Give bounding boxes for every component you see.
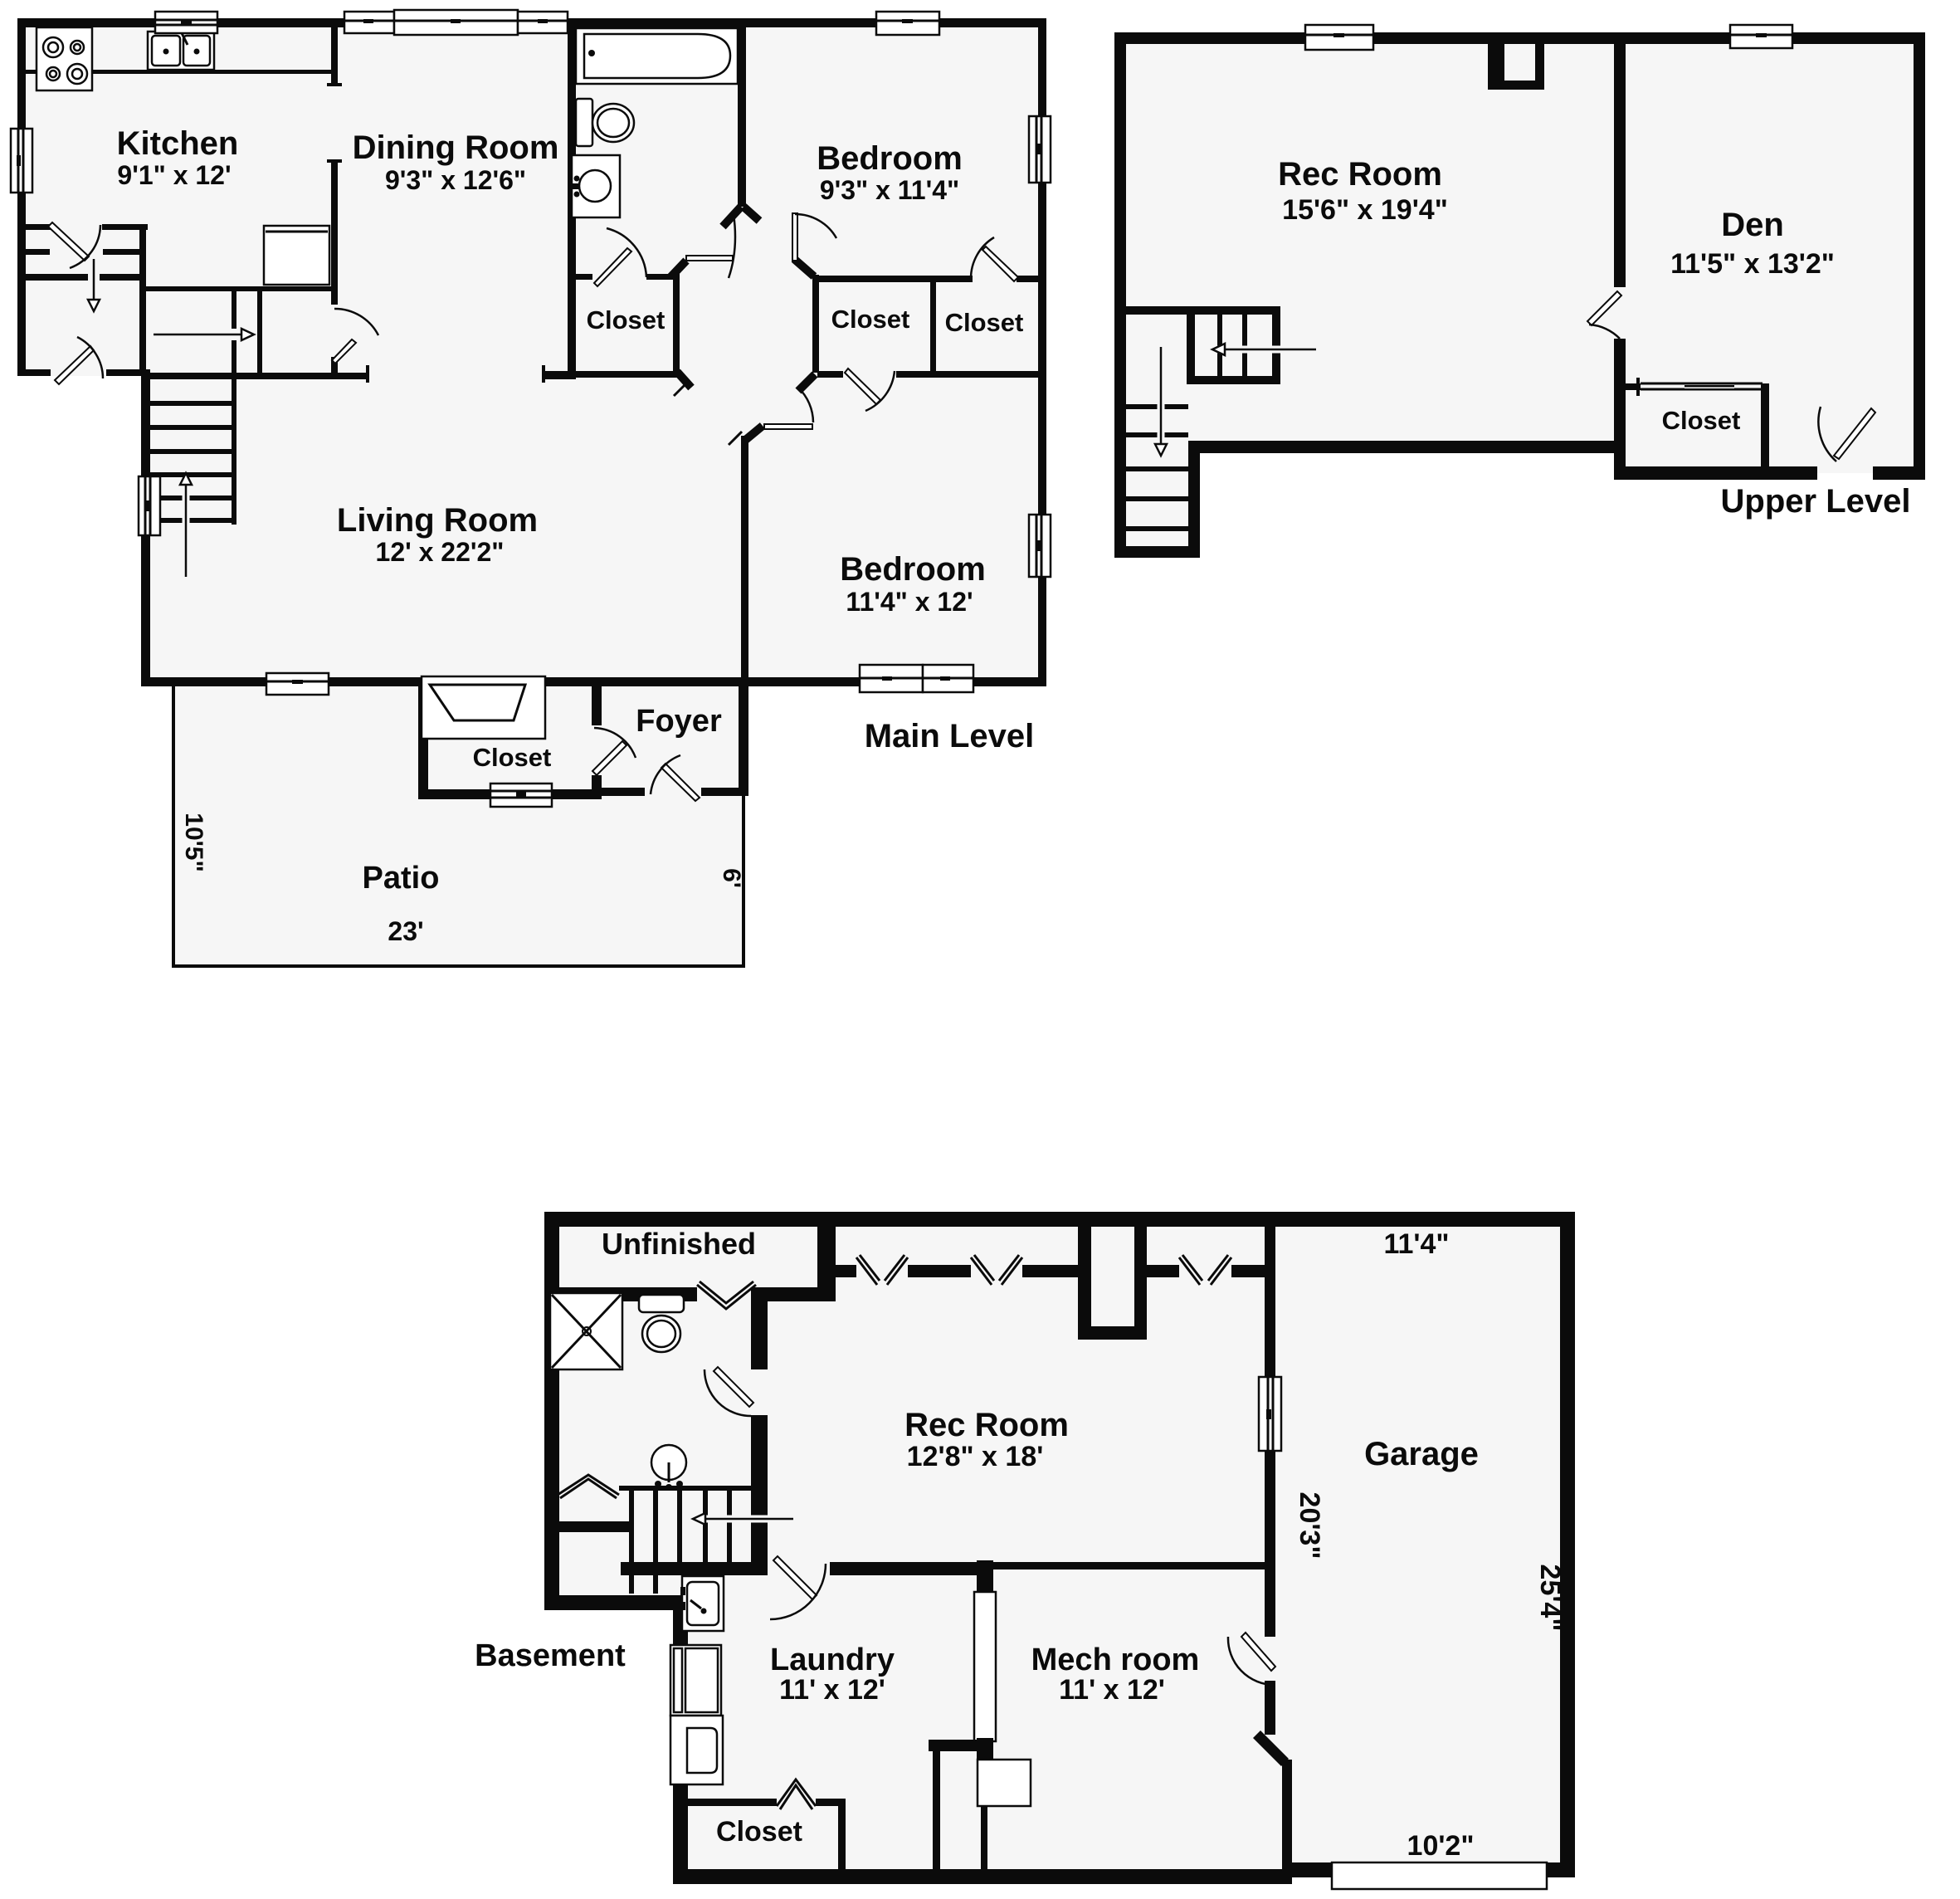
- svg-text:12' x 22'2": 12' x 22'2": [376, 537, 505, 567]
- svg-text:Unfinished: Unfinished: [602, 1227, 756, 1261]
- svg-text:Closet: Closet: [1662, 406, 1741, 435]
- svg-text:9'3" x 11'4": 9'3" x 11'4": [820, 175, 959, 205]
- svg-text:9'1" x 12': 9'1" x 12': [117, 160, 231, 190]
- svg-text:11' x 12': 11' x 12': [779, 1674, 885, 1706]
- svg-text:Foyer: Foyer: [636, 704, 722, 739]
- svg-text:Main Level: Main Level: [865, 718, 1035, 754]
- svg-text:Dining Room: Dining Room: [353, 129, 559, 166]
- svg-text:11'5" x 13'2": 11'5" x 13'2": [1670, 248, 1835, 280]
- svg-text:20'3": 20'3": [1294, 1492, 1325, 1560]
- svg-text:Living Room: Living Room: [337, 502, 538, 539]
- svg-text:15'6" x 19'4": 15'6" x 19'4": [1282, 194, 1448, 226]
- svg-text:Kitchen: Kitchen: [117, 125, 239, 162]
- svg-text:Closet: Closet: [716, 1816, 802, 1848]
- svg-text:25'4": 25'4": [1534, 1565, 1566, 1632]
- svg-text:Bedroom: Bedroom: [817, 140, 963, 177]
- svg-text:12'8" x 18': 12'8" x 18': [907, 1441, 1044, 1472]
- svg-text:Den: Den: [1721, 207, 1784, 243]
- svg-text:Closet: Closet: [945, 308, 1024, 337]
- svg-text:Mech room: Mech room: [1031, 1643, 1200, 1677]
- svg-text:Rec Room: Rec Room: [904, 1407, 1069, 1443]
- svg-text:Patio: Patio: [363, 861, 440, 896]
- svg-text:Closet: Closet: [831, 305, 910, 334]
- svg-text:Bedroom: Bedroom: [840, 551, 986, 588]
- svg-text:23': 23': [388, 916, 423, 946]
- svg-text:Basement: Basement: [475, 1638, 626, 1673]
- svg-text:Rec Room: Rec Room: [1278, 156, 1442, 193]
- svg-text:Upper Level: Upper Level: [1721, 483, 1911, 520]
- svg-text:Closet: Closet: [473, 743, 552, 772]
- svg-text:6': 6': [718, 868, 745, 888]
- svg-text:Closet: Closet: [587, 305, 666, 334]
- svg-text:10'5": 10'5": [180, 813, 207, 871]
- svg-text:11' x 12': 11' x 12': [1059, 1674, 1165, 1706]
- svg-text:Garage: Garage: [1364, 1436, 1479, 1472]
- svg-text:10'2": 10'2": [1407, 1830, 1475, 1862]
- svg-text:9'3" x 12'6": 9'3" x 12'6": [385, 165, 526, 195]
- svg-text:11'4": 11'4": [1383, 1228, 1449, 1260]
- svg-text:11'4" x 12': 11'4" x 12': [846, 587, 973, 617]
- svg-text:Laundry: Laundry: [770, 1643, 895, 1677]
